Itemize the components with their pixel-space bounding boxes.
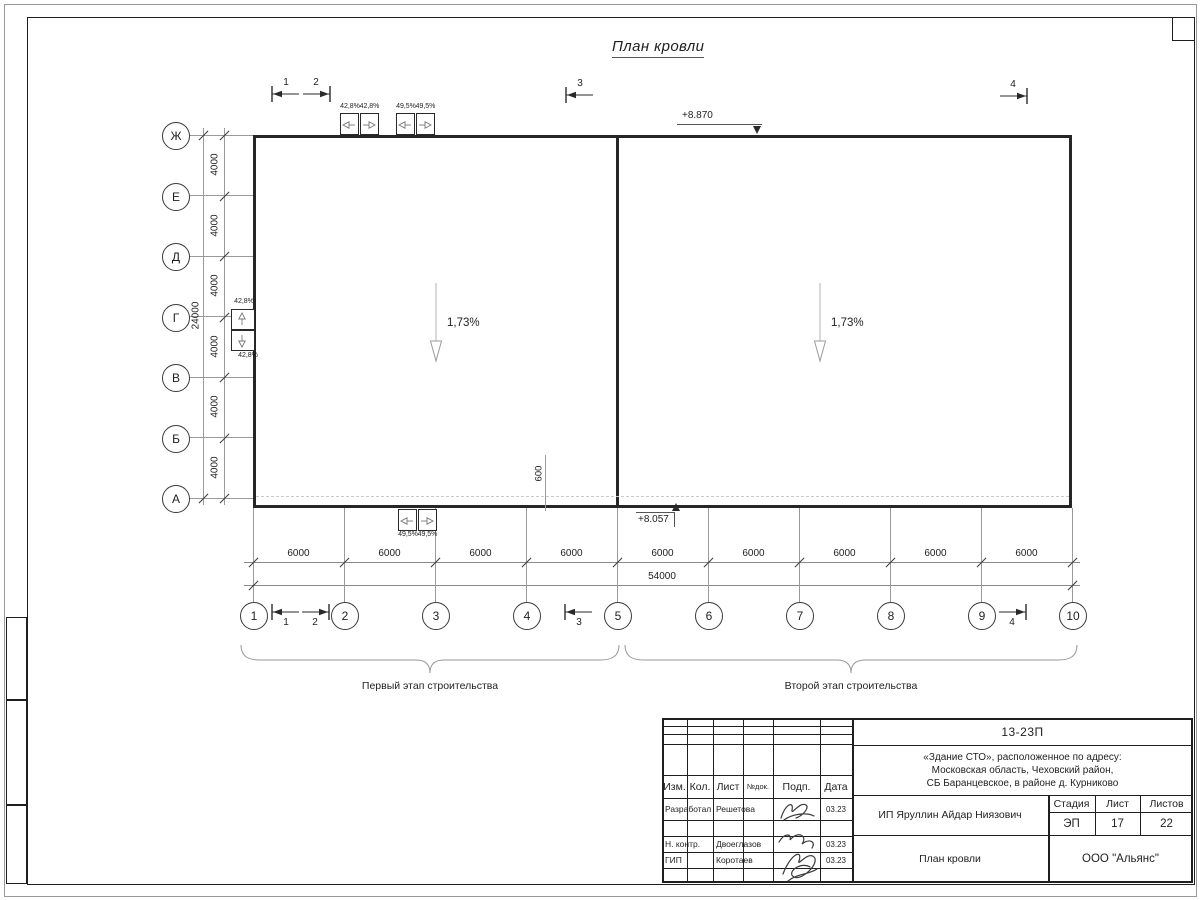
- funnel-slope-label: 49,5%: [416, 531, 440, 538]
- slope-label-left: 1,73%: [447, 317, 480, 329]
- tb-date-cell: [820, 820, 852, 836]
- slope-arrow-left: [428, 283, 444, 363]
- elevation-bottom-label: +8.057: [636, 512, 675, 527]
- stage-divider-line: [616, 135, 619, 508]
- col-dim-label: 6000: [269, 548, 329, 559]
- col-dim-label: 6000: [451, 548, 511, 559]
- project-address: «Здание СТО», расположенное по адресу: М…: [852, 745, 1193, 795]
- tb-hline: [662, 744, 852, 745]
- col-axis-circle: 6: [695, 602, 723, 630]
- project-line2: Московская область, Чеховский район,: [932, 764, 1114, 777]
- tb-header-cell: Изм.: [662, 775, 687, 798]
- col-total-label: 54000: [632, 571, 692, 582]
- roof-overhang-dashed-line: [256, 496, 1069, 497]
- tb-date-cell: 03.23: [820, 836, 852, 852]
- elevation-top-leader: [677, 124, 762, 125]
- tb-date-cell: 03.23: [820, 852, 852, 868]
- tb-name-cell: Коротаев: [713, 852, 773, 868]
- col-axis-line: [526, 508, 527, 602]
- stage-brace-second: [624, 644, 1078, 676]
- section-cut-number: 2: [307, 617, 323, 628]
- col-axis-line: [708, 508, 709, 602]
- col-axis-circle: 7: [786, 602, 814, 630]
- col-axis-circle: 9: [968, 602, 996, 630]
- tb-role-cell: [662, 868, 713, 883]
- tb-role-cell: ГИП: [662, 852, 713, 868]
- col-axis-circle: 10: [1059, 602, 1087, 630]
- row-axis-circle: Д: [162, 243, 190, 271]
- col-dim-label: 6000: [724, 548, 784, 559]
- margin-box: [6, 805, 27, 884]
- stage-first-label: Первый этап строительства: [310, 680, 550, 692]
- tb-hline: [662, 734, 852, 735]
- col-axis-circle: 8: [877, 602, 905, 630]
- col-dim-label: 6000: [815, 548, 875, 559]
- signature-1: [781, 804, 814, 820]
- roof-plan-sheet: План кровли 1,73% 1,73% +8.870 +8.057 60…: [0, 0, 1200, 900]
- funnel-arrow-right-icon: [361, 116, 377, 134]
- row-dim-label: 4000: [210, 195, 221, 255]
- tb-role-cell: Н. контр.: [662, 836, 713, 852]
- roof-funnel-box: [398, 509, 417, 531]
- col-axis-circle: 2: [331, 602, 359, 630]
- tb-date-cell: 03.23: [820, 798, 852, 820]
- col-axis-circle: 1: [240, 602, 268, 630]
- drawing-title: План кровли: [852, 835, 1048, 883]
- col-dim-label: 6000: [542, 548, 602, 559]
- funnel-arrow-left-icon: [341, 116, 357, 134]
- client-name: ИП Яруллин Айдар Ниязович: [852, 795, 1048, 835]
- funnel-slope-label: 42,8%: [230, 298, 258, 305]
- col-axis-line: [253, 508, 254, 602]
- company-name: ООО "Альянс": [1048, 835, 1193, 883]
- row-dim-label: 4000: [210, 256, 221, 316]
- project-line1: «Здание СТО», расположенное по адресу:: [923, 751, 1121, 764]
- roof-funnel-box: [231, 309, 255, 330]
- tb-name-cell: Двоеглазов: [713, 836, 773, 852]
- stage-second-label: Второй этап строительства: [731, 680, 971, 692]
- funnel-slope-label: 49,5%: [414, 103, 438, 110]
- section-cut-number: 4: [1005, 79, 1021, 90]
- section-cut-number: 1: [278, 617, 294, 628]
- project-line3: СБ Баранцевское, в районе д. Курниково: [927, 777, 1119, 790]
- row-axis-circle: Б: [162, 425, 190, 453]
- tb-role-cell: Разработал: [662, 798, 713, 820]
- col-dim-label: 6000: [633, 548, 693, 559]
- elevation-bottom-arrow: [672, 503, 680, 511]
- col-axis-line: [890, 508, 891, 602]
- row-axis-line: [188, 437, 253, 438]
- doc-number: 13-23П: [852, 718, 1193, 745]
- roof-funnel-box: [418, 509, 437, 531]
- row-dim-label: 4000: [210, 377, 221, 437]
- tb-name-cell: [713, 868, 773, 883]
- offset-dim-line: [545, 455, 546, 511]
- col-axis-circle: 5: [604, 602, 632, 630]
- row-total-label: 24000: [191, 276, 202, 356]
- row-dim-label: 4000: [210, 437, 221, 497]
- col-dim-label: 6000: [360, 548, 420, 559]
- section-cut-number: 3: [571, 617, 587, 628]
- offset-dim-label: 600: [534, 444, 545, 504]
- col-axis-circle: 4: [513, 602, 541, 630]
- funnel-arrow-down-icon: [233, 333, 251, 349]
- row-axis-circle: Г: [162, 304, 190, 332]
- row-dim-label: 4000: [210, 316, 221, 376]
- funnel-slope-label: 42,8%: [234, 352, 262, 359]
- tb-header-cell: Кол.: [687, 775, 713, 798]
- row-axis-line: [188, 498, 253, 499]
- signature-3: [783, 854, 817, 881]
- row-axis-line: [188, 256, 253, 257]
- col-dim-line-2: [244, 585, 1080, 586]
- margin-box: [6, 617, 27, 700]
- building-outline: [253, 135, 1072, 508]
- tb-hline: [662, 726, 852, 727]
- row-axis-circle: Е: [162, 183, 190, 211]
- tb-stage-header-cell: Листов: [1140, 795, 1193, 812]
- tb-stage-value-cell: ЭП: [1048, 812, 1095, 835]
- slope-arrow-right: [812, 283, 828, 363]
- corner-box: [1172, 18, 1194, 41]
- col-axis-line: [344, 508, 345, 602]
- tb-stage-value-cell: 22: [1140, 812, 1193, 835]
- funnel-arrow-right-icon: [419, 512, 435, 530]
- funnel-slope-label: 42,8%: [358, 103, 382, 110]
- margin-box: [6, 700, 27, 805]
- funnel-arrow-left-icon: [399, 512, 415, 530]
- tb-role-cell: [662, 820, 713, 836]
- sheet-title: План кровли: [612, 38, 704, 58]
- roof-funnel-box: [231, 330, 255, 351]
- section-cut-number: 4: [1004, 617, 1020, 628]
- tb-header-cell: №док.: [743, 775, 773, 798]
- elevation-top-label: +8.870: [682, 110, 713, 121]
- roof-funnel-box: [396, 113, 415, 135]
- col-axis-line: [617, 508, 618, 602]
- col-dim-line-1: [244, 562, 1080, 563]
- row-axis-line: [188, 135, 253, 136]
- signature-2: [779, 835, 813, 848]
- funnel-arrow-up-icon: [233, 311, 251, 327]
- roof-funnel-box: [416, 113, 435, 135]
- section-cut-number: 1: [278, 77, 294, 88]
- elevation-top-arrow: [753, 126, 761, 134]
- stage-brace-first: [240, 644, 620, 676]
- tb-date-cell: [820, 868, 852, 883]
- row-axis-circle: В: [162, 364, 190, 392]
- col-axis-line: [799, 508, 800, 602]
- signatures: [773, 798, 820, 883]
- funnel-arrow-right-icon: [417, 116, 433, 134]
- col-axis-circle: 3: [422, 602, 450, 630]
- tb-header-cell: Дата: [820, 775, 852, 798]
- tb-name-cell: Решетова: [713, 798, 773, 820]
- roof-funnel-box: [360, 113, 379, 135]
- row-axis-circle: Ж: [162, 122, 190, 150]
- section-cut-number: 3: [572, 78, 588, 89]
- col-axis-line: [981, 508, 982, 602]
- section-cut-number: 2: [308, 77, 324, 88]
- col-dim-label: 6000: [997, 548, 1057, 559]
- tb-name-cell: [713, 820, 773, 836]
- tb-stage-header-cell: Лист: [1095, 795, 1140, 812]
- row-axis-line: [188, 377, 253, 378]
- tb-header-cell: Подп.: [773, 775, 820, 798]
- funnel-arrow-left-icon: [397, 116, 413, 134]
- tb-stage-value-cell: 17: [1095, 812, 1140, 835]
- col-dim-label: 6000: [906, 548, 966, 559]
- row-dim-label: 4000: [210, 135, 221, 195]
- roof-funnel-box: [340, 113, 359, 135]
- row-axis-line: [188, 195, 253, 196]
- tb-stage-header-cell: Стадия: [1048, 795, 1095, 812]
- tb-header-cell: Лист: [713, 775, 743, 798]
- row-axis-circle: А: [162, 485, 190, 513]
- slope-label-right: 1,73%: [831, 317, 864, 329]
- col-axis-line: [1072, 508, 1073, 602]
